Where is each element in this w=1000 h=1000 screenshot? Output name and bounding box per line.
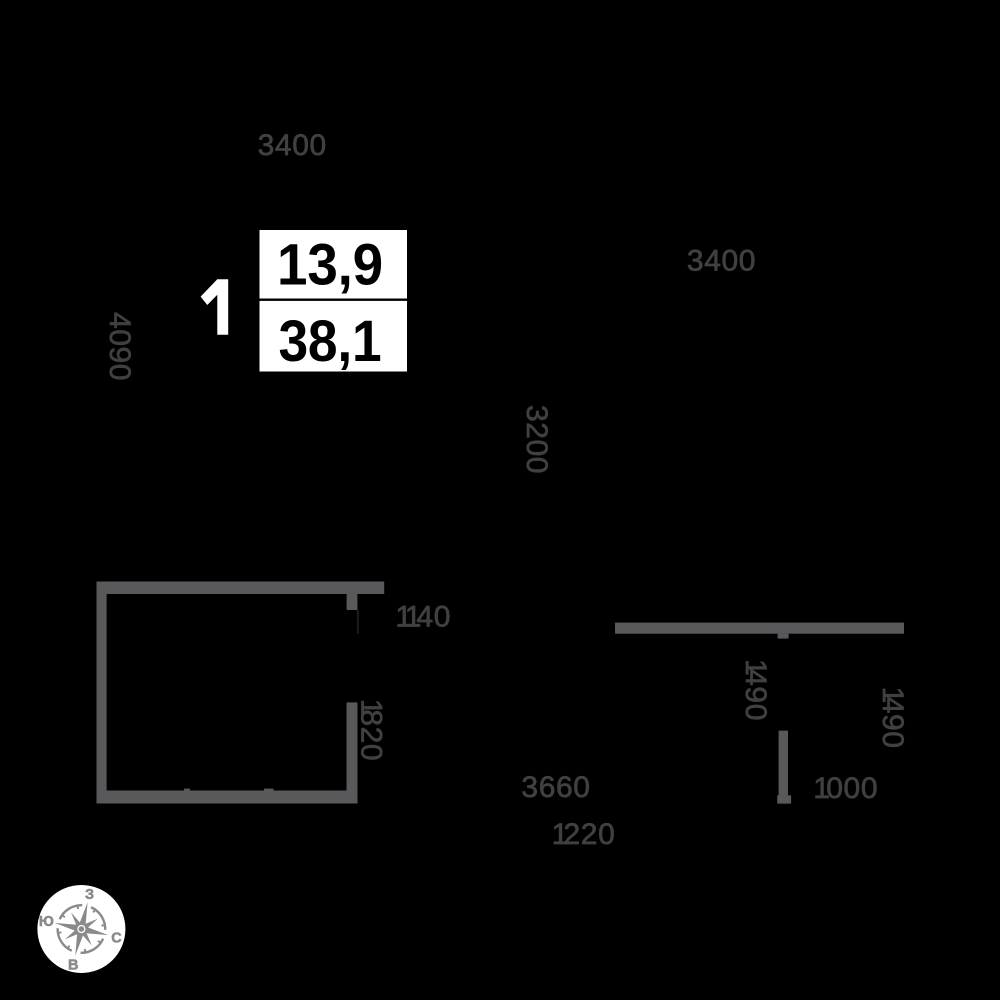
svg-text:3400: 3400 — [258, 129, 327, 162]
svg-text:38,1: 38,1 — [278, 309, 381, 374]
svg-text:С: С — [111, 930, 122, 946]
svg-text:13,9: 13,9 — [277, 232, 383, 297]
svg-text:3400: 3400 — [687, 245, 756, 278]
svg-text:3200: 3200 — [520, 405, 553, 474]
svg-text:З: З — [85, 887, 94, 903]
svg-text:1820: 1820 — [355, 699, 388, 761]
svg-text:1000: 1000 — [813, 772, 878, 805]
svg-text:Ю: Ю — [39, 914, 54, 930]
svg-text:1490: 1490 — [876, 687, 909, 749]
svg-text:3660: 3660 — [521, 771, 590, 804]
svg-text:4090: 4090 — [103, 312, 136, 381]
svg-text:В: В — [68, 957, 78, 973]
svg-text:1490: 1490 — [739, 659, 772, 721]
svg-text:1220: 1220 — [552, 818, 616, 851]
svg-text:1140: 1140 — [395, 601, 451, 634]
